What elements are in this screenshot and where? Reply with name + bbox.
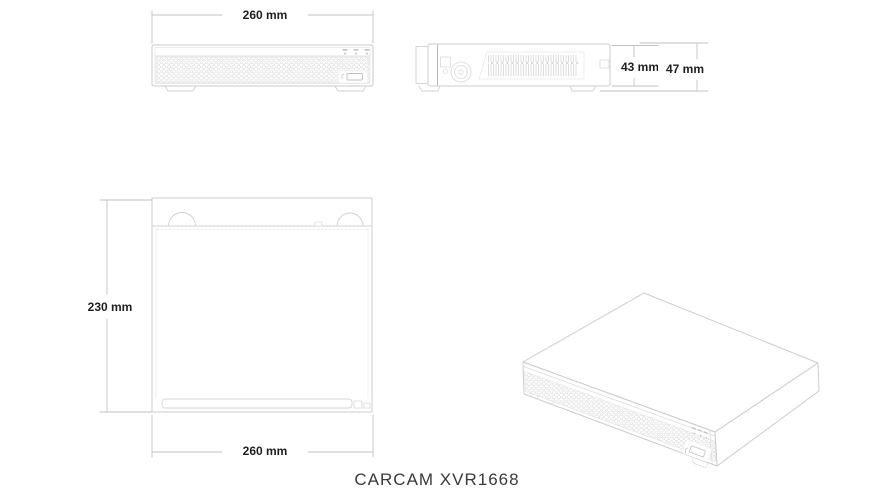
side-vent-slots: [488, 55, 578, 76]
side-foot-left: [419, 86, 440, 91]
side-foot-right: [570, 86, 596, 91]
top-width-dimension-label: 260 mm: [222, 444, 308, 458]
line-drawing: [0, 0, 880, 500]
front-width-dimension-label: 260 mm: [222, 8, 308, 22]
top-depth-dimension-label: 230 mm: [76, 300, 144, 314]
product-model-title: CARCAM XVR1668: [317, 470, 557, 490]
front-usb-port: [339, 72, 367, 83]
dimension-diagram: 260 mm 43 mm 47 mm 230 mm 260 mm CARCAM …: [0, 0, 880, 500]
isometric-view: [523, 293, 819, 468]
top-view: [152, 198, 372, 412]
front-foot-left: [165, 86, 196, 91]
side-height-total-dimension-label: 47 mm: [658, 62, 712, 76]
side-view: [416, 44, 610, 91]
front-foot-right: [335, 86, 366, 91]
front-view: [152, 45, 373, 91]
front-perforation: [156, 57, 369, 83]
